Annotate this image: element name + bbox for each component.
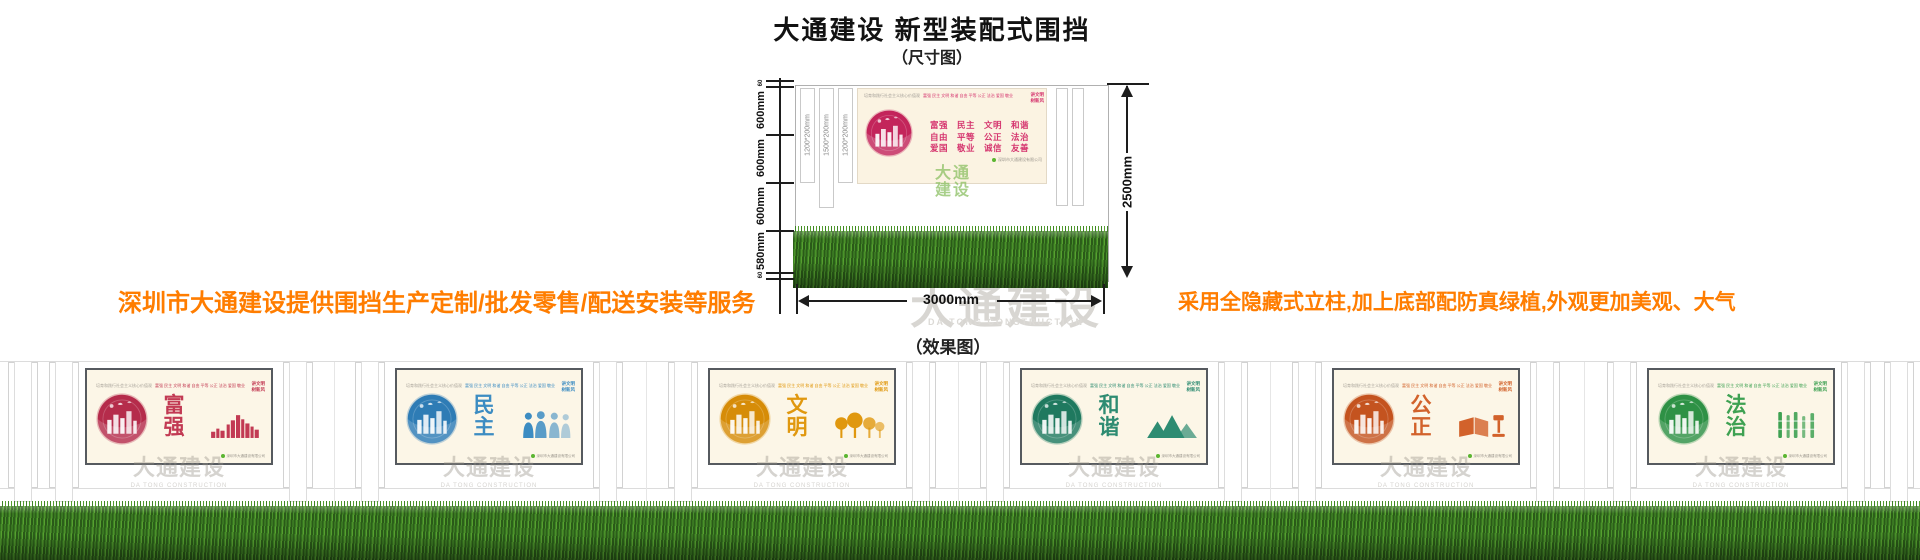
arrow-left-icon: [798, 295, 809, 307]
fence-post: [1056, 88, 1068, 206]
dimension-tick: [766, 86, 794, 88]
papercut-circle-icon: [406, 393, 458, 445]
size-diagram-label: （尺寸图）: [0, 44, 1864, 68]
corner-slogan-line1: 讲文明: [1187, 381, 1201, 387]
panel-top-slogan: 培育和践行社会主义核心价值观富强 民主 文明 和谐 自由 平等 公正 法治 爱国…: [1031, 383, 1181, 389]
values-row: 爱国 敬业 诚信 友善: [930, 143, 1042, 155]
top-slogan-text: 培育和践行社会主义核心价值观: [96, 383, 152, 388]
top-values-text: 富强 民主 文明 和谐 自由 平等 公正 法治 爱国 敬业 诚信 友善: [465, 383, 556, 388]
panel-top-slogan: 培育和践行社会主义核心价值观富强 民主 文明 和谐 自由 平等 公正 法治 爱国…: [406, 383, 556, 389]
extension-line: [1103, 284, 1105, 314]
height-segment-label: 600mm: [755, 91, 767, 129]
top-slogan-text: 培育和践行社会主义核心价值观: [719, 383, 775, 388]
page-title: 大通建设 新型装配式围挡: [0, 10, 1864, 47]
top-values-text: 富强 民主 文明 和谐 自由 平等 公正 法治 爱国 敬业 诚信 友善: [155, 383, 246, 388]
core-value-word: 和谐: [1095, 395, 1123, 439]
corner-slogan-line2: 树新风: [1187, 387, 1201, 393]
brand-watermark-cn: 大通建设: [414, 450, 564, 482]
panel-footer-note: 深圳市大通建设有限公司: [950, 157, 1042, 163]
artificial-grass-hedge: [0, 506, 1920, 560]
brand-watermark-en: DA TONG CONSTRUCTION: [727, 483, 877, 489]
brand-watermark-en: DA TONG CONSTRUCTION: [1666, 483, 1816, 489]
corner-slogan-line1: 讲文明: [1814, 381, 1828, 387]
top-values-text: 富强 民主 文明 和谐 自由 平等 公正 法治 爱国 敬业 诚信 友善: [923, 93, 1014, 98]
brand-watermark: 大通建设DA TONG CONSTRUCTION: [1351, 450, 1501, 489]
core-value-word: 公正: [1407, 395, 1435, 439]
brand-watermark: 大通建设DA TONG CONSTRUCTION: [1039, 450, 1189, 489]
dimension-tick: [766, 272, 794, 274]
green-logo-line2: 建设: [931, 182, 975, 199]
module-divider: [1584, 362, 1585, 507]
panel-top-slogan: 培育和践行社会主义核心价值观富强 民主 文明 和谐 自由 平等 公正 法治 爱国…: [1343, 383, 1493, 389]
top-slogan-text: 培育和践行社会主义核心价值观: [864, 93, 920, 98]
corner-slogan-line2: 树新风: [1499, 387, 1513, 393]
brand-watermark: 大通建设DA TONG CONSTRUCTION: [727, 450, 877, 489]
papercut-circle-icon: [719, 393, 771, 445]
fence-column-leg: [1536, 362, 1554, 502]
fence-column-leg: [361, 362, 379, 502]
top-values-text: 富强 民主 文明 和谐 自由 平等 公正 法治 爱国 敬业 诚信 友善: [1717, 383, 1808, 388]
green-logo-watermark: 大通 建设: [931, 165, 975, 199]
width-dimension-label: 3000mm: [901, 291, 1001, 307]
post-size-label: 1500*200mm: [823, 114, 830, 156]
brand-watermark-en: DA TONG CONSTRUCTION: [1351, 483, 1501, 489]
module-divider: [1270, 362, 1271, 507]
fence-bottom-edge: [0, 488, 1920, 489]
brand-watermark-cn: 大通建设: [1351, 450, 1501, 482]
module-divider: [334, 362, 335, 507]
brand-watermark-en: DA TONG CONSTRUCTION: [868, 317, 1144, 327]
corner-slogan-line1: 讲文明: [875, 381, 889, 387]
panel-top-slogan: 培育和践行社会主义核心价值观富强 民主 文明 和谐 自由 平等 公正 法治 爱国…: [96, 383, 246, 389]
fence-column-leg: [1224, 362, 1242, 502]
papercut-circle-icon: [96, 393, 148, 445]
top-values-text: 富强 民主 文明 和谐 自由 平等 公正 法治 爱国 敬业 诚信 友善: [1090, 383, 1181, 388]
dimension-tick: [766, 80, 794, 82]
brand-watermark-cn: 大通建设: [727, 450, 877, 482]
arrow-up-icon: [1121, 85, 1133, 97]
fence-column-leg: [599, 362, 617, 502]
corner-slogan: 讲文明树新风: [252, 381, 266, 392]
values-row: 自由 平等 公正 法治: [930, 132, 1042, 144]
panel-top-slogan: 培育和践行社会主义核心价值观富强 民主 文明 和谐 自由 平等 公正 法治 爱国…: [864, 93, 1014, 99]
corner-slogan: 讲文明树新风: [1814, 381, 1828, 392]
corner-slogan-line2: 树新风: [875, 387, 889, 393]
dimension-tick: [766, 230, 794, 232]
dimension-tick: [766, 278, 794, 280]
fence-column-leg: [1847, 362, 1865, 502]
corner-slogan: 讲文明树新风: [562, 381, 576, 392]
green-logo-line1: 大通: [931, 165, 975, 182]
post-size-label: 1200*200mm: [842, 114, 849, 156]
height-segment-label: 600mm: [755, 187, 767, 225]
top-values-text: 富强 民主 文明 和谐 自由 平等 公正 法治 爱国 敬业 诚信 友善: [778, 383, 869, 388]
height-segment-label: 600mm: [755, 139, 767, 177]
theme-motif-icon: [833, 411, 885, 439]
corner-slogan: 讲文明 树新风: [1008, 92, 1044, 103]
footer-note-text: 深圳市大通建设有限公司: [998, 157, 1042, 162]
green-dot-icon: [992, 158, 996, 162]
top-slogan-text: 培育和践行社会主义核心价值观: [1658, 383, 1714, 388]
core-value-word: 法治: [1722, 395, 1750, 439]
brand-watermark-cn: 大通建设: [104, 450, 254, 482]
height-segment-label: 60: [758, 272, 764, 279]
corner-slogan-line2: 树新风: [562, 387, 576, 393]
corner-slogan-line2: 树新风: [1008, 98, 1044, 104]
corner-slogan: 讲文明树新风: [1499, 381, 1513, 392]
height-dimension-label: 2500mm: [1119, 153, 1136, 211]
theme-motif-icon: [210, 411, 262, 439]
top-values-text: 富强 民主 文明 和谐 自由 平等 公正 法治 爱国 敬业 诚信 友善: [1402, 383, 1493, 388]
core-values-text: 富强 民主 文明 和谐 自由 平等 公正 法治 爱国 敬业 诚信 友善: [930, 120, 1042, 155]
theme-motif-icon: [1145, 411, 1197, 439]
core-value-word: 民主: [470, 395, 498, 439]
arrow-down-icon: [1121, 266, 1133, 278]
panel-top-slogan: 培育和践行社会主义核心价值观富强 民主 文明 和谐 自由 平等 公正 法治 爱国…: [1658, 383, 1808, 389]
brand-watermark: 大通建设DA TONG CONSTRUCTION: [414, 450, 564, 489]
fence-column-leg: [14, 362, 32, 502]
panel-top-slogan: 培育和践行社会主义核心价值观富强 民主 文明 和谐 自由 平等 公正 法治 爱国…: [719, 383, 869, 389]
theme-motif-icon: [1772, 411, 1824, 439]
brand-watermark-en: DA TONG CONSTRUCTION: [104, 483, 254, 489]
product-poster: 大通建设 新型装配式围挡 （尺寸图） 大通建设 DA TONG CONSTRUC…: [0, 0, 1920, 560]
fence-post: [1072, 88, 1084, 206]
fence-column-leg: [1613, 362, 1631, 502]
fence-column-leg: [1890, 362, 1908, 502]
dimension-tick: [766, 182, 794, 184]
core-value-word: 富强: [160, 395, 188, 439]
theme-motif-icon: [1457, 411, 1509, 439]
module-divider: [646, 362, 647, 507]
service-note: 深圳市大通建设提供围挡生产定制/批发零售/配送安装等服务: [118, 283, 755, 318]
brand-watermark: 大通建设DA TONG CONSTRUCTION: [1666, 450, 1816, 489]
corner-slogan: 讲文明树新风: [1187, 381, 1201, 392]
papercut-circle-icon: [1031, 393, 1083, 445]
post-size-label: 1200*200mm: [804, 114, 811, 156]
core-value-word: 文明: [783, 395, 811, 439]
fence-column-leg: [55, 362, 73, 502]
papercut-circle-icon: [1658, 393, 1710, 445]
top-slogan-text: 培育和践行社会主义核心价值观: [1343, 383, 1399, 388]
brand-watermark: 大通建设DA TONG CONSTRUCTION: [104, 450, 254, 489]
fence-column-leg: [912, 362, 930, 502]
fence-column-leg: [986, 362, 1004, 502]
top-slogan-text: 培育和践行社会主义核心价值观: [406, 383, 462, 388]
corner-slogan-line2: 树新风: [252, 387, 266, 393]
papercut-circle-icon: [865, 109, 913, 157]
width-dimension-line: [807, 300, 907, 302]
top-slogan-text: 培育和践行社会主义核心价值观: [1031, 383, 1087, 388]
height-segment-label: 580mm: [755, 232, 767, 270]
fence-column-leg: [1298, 362, 1316, 502]
values-row: 富强 民主 文明 和谐: [930, 120, 1042, 132]
arrow-right-icon: [1091, 295, 1102, 307]
dimension-tick: [766, 134, 794, 136]
papercut-circle-icon: [1343, 393, 1395, 445]
feature-note: 采用全隐藏式立柱,加上底部配防真绿植,外观更加美观、大气: [1178, 286, 1736, 316]
brand-watermark-en: DA TONG CONSTRUCTION: [414, 483, 564, 489]
corner-slogan-line1: 讲文明: [562, 381, 576, 387]
corner-slogan-line1: 讲文明: [252, 381, 266, 387]
module-divider: [958, 362, 959, 507]
corner-slogan: 讲文明树新风: [875, 381, 889, 392]
corner-slogan-line2: 树新风: [1814, 387, 1828, 393]
brand-watermark-en: DA TONG CONSTRUCTION: [1039, 483, 1189, 489]
fence-column-leg: [674, 362, 692, 502]
brand-watermark-cn: 大通建设: [1666, 450, 1816, 482]
corner-slogan-line1: 讲文明: [1499, 381, 1513, 387]
brand-watermark-cn: 大通建设: [1039, 450, 1189, 482]
fence-column-leg: [289, 362, 307, 502]
theme-motif-icon: [520, 411, 572, 439]
effect-diagram-label: （效果图）: [848, 333, 1048, 358]
height-segment-label: 60: [758, 80, 764, 87]
grass-hedge-drawing: [793, 231, 1108, 288]
width-dimension-line: [997, 300, 1093, 302]
